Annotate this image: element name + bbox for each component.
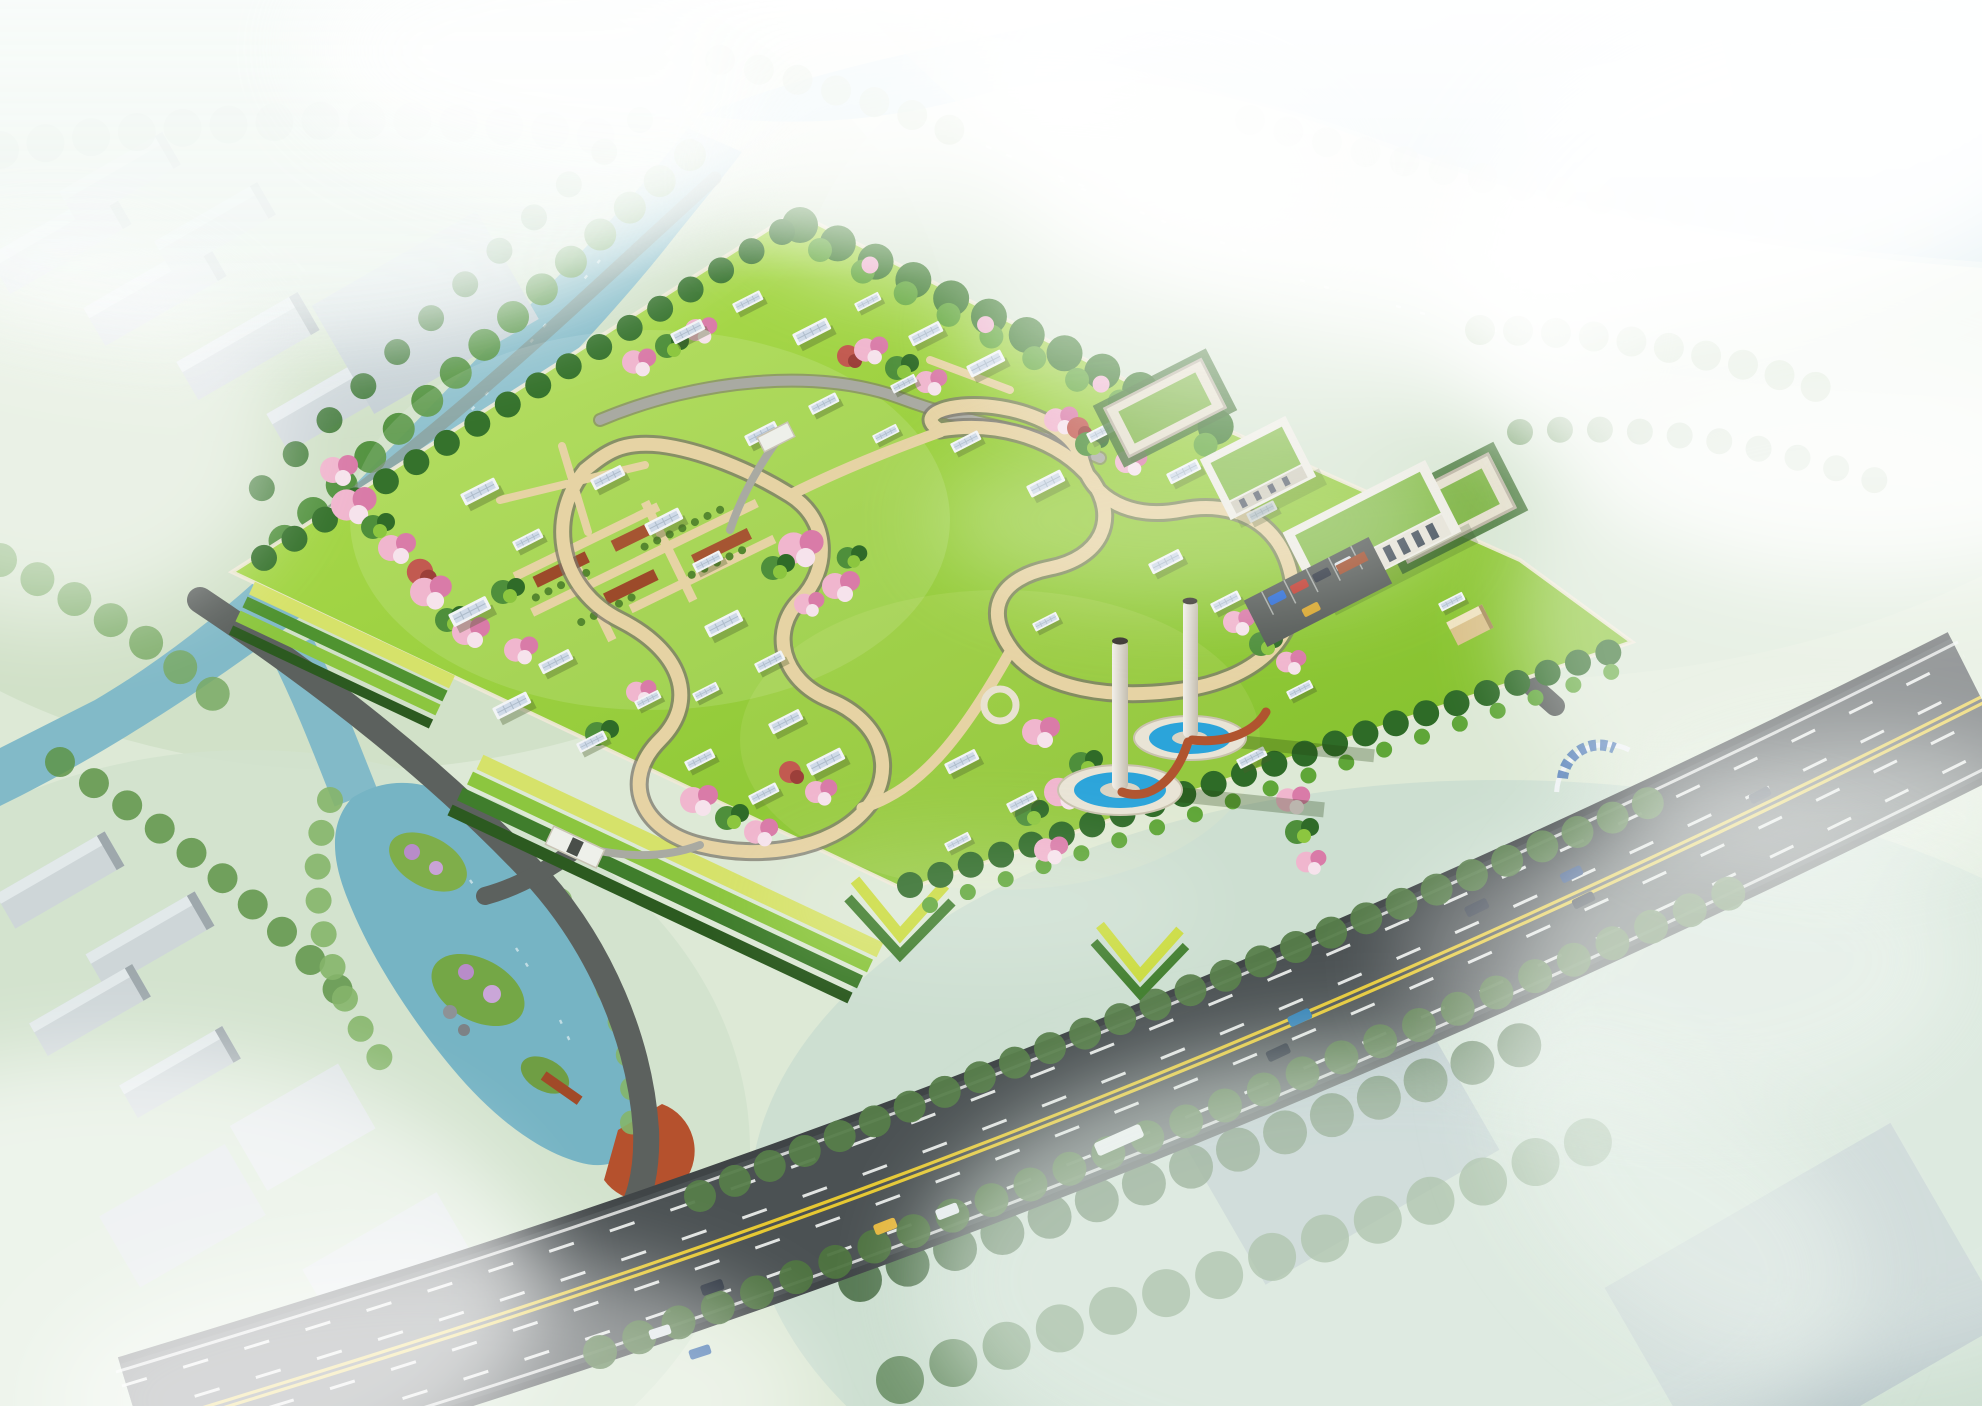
fog-wisp — [930, 435, 1450, 605]
aerial-rendering-stage — [0, 0, 1982, 1406]
tower-column — [1112, 640, 1128, 790]
island-bloom-1 — [404, 844, 420, 860]
island-bloom-2 — [429, 861, 443, 875]
fog-wisp — [1400, 810, 1960, 1110]
island-rock-2 — [458, 1024, 470, 1036]
island-bloom-3 — [458, 964, 474, 980]
fog-wisp — [730, 65, 1330, 295]
scene-svg — [0, 0, 1982, 1406]
island-rock-1 — [443, 1005, 457, 1019]
island-bloom-4 — [483, 985, 501, 1003]
tower-cap — [1112, 637, 1128, 644]
fog-wisp — [770, 840, 1210, 970]
tower-column — [1183, 600, 1198, 738]
